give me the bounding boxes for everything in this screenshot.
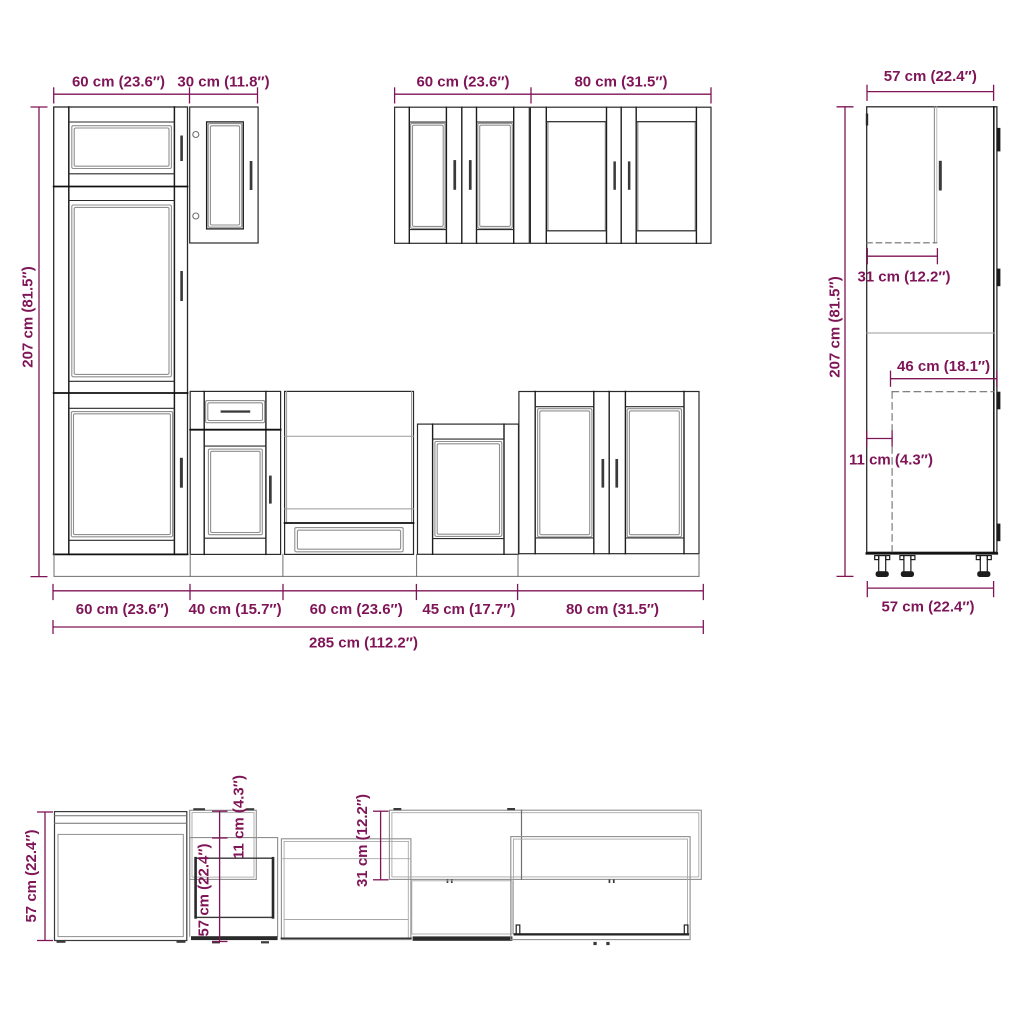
svg-text:31 cm (12.2″): 31 cm (12.2″) xyxy=(857,269,950,286)
svg-text:60 cm (23.6″): 60 cm (23.6″) xyxy=(72,74,165,91)
svg-text:207 cm (81.5″): 207 cm (81.5″) xyxy=(20,266,37,367)
svg-text:57 cm (22.4″): 57 cm (22.4″) xyxy=(23,829,40,922)
svg-text:45 cm (17.7″): 45 cm (17.7″) xyxy=(422,601,515,618)
svg-text:60 cm (23.6″): 60 cm (23.6″) xyxy=(416,74,509,91)
svg-text:57 cm (22.4″): 57 cm (22.4″) xyxy=(196,843,213,936)
svg-text:30 cm (11.8″): 30 cm (11.8″) xyxy=(177,74,269,91)
svg-text:60 cm (23.6″): 60 cm (23.6″) xyxy=(76,601,169,618)
svg-text:11 cm (4.3″): 11 cm (4.3″) xyxy=(849,452,933,469)
svg-text:46 cm (18.1″): 46 cm (18.1″) xyxy=(897,358,990,375)
svg-text:11 cm (4.3″): 11 cm (4.3″) xyxy=(231,775,248,859)
svg-text:80 cm (31.5″): 80 cm (31.5″) xyxy=(566,601,659,618)
svg-text:207 cm (81.5″): 207 cm (81.5″) xyxy=(827,276,844,377)
svg-text:57 cm (22.4″): 57 cm (22.4″) xyxy=(884,68,977,85)
svg-text:57 cm (22.4″): 57 cm (22.4″) xyxy=(881,599,974,616)
svg-text:40 cm (15.7″): 40 cm (15.7″) xyxy=(189,601,282,618)
svg-text:80 cm (31.5″): 80 cm (31.5″) xyxy=(574,74,667,91)
svg-text:285 cm (112.2″): 285 cm (112.2″) xyxy=(309,635,418,652)
svg-text:60 cm (23.6″): 60 cm (23.6″) xyxy=(310,601,403,618)
svg-text:31 cm (12.2″): 31 cm (12.2″) xyxy=(354,794,371,887)
